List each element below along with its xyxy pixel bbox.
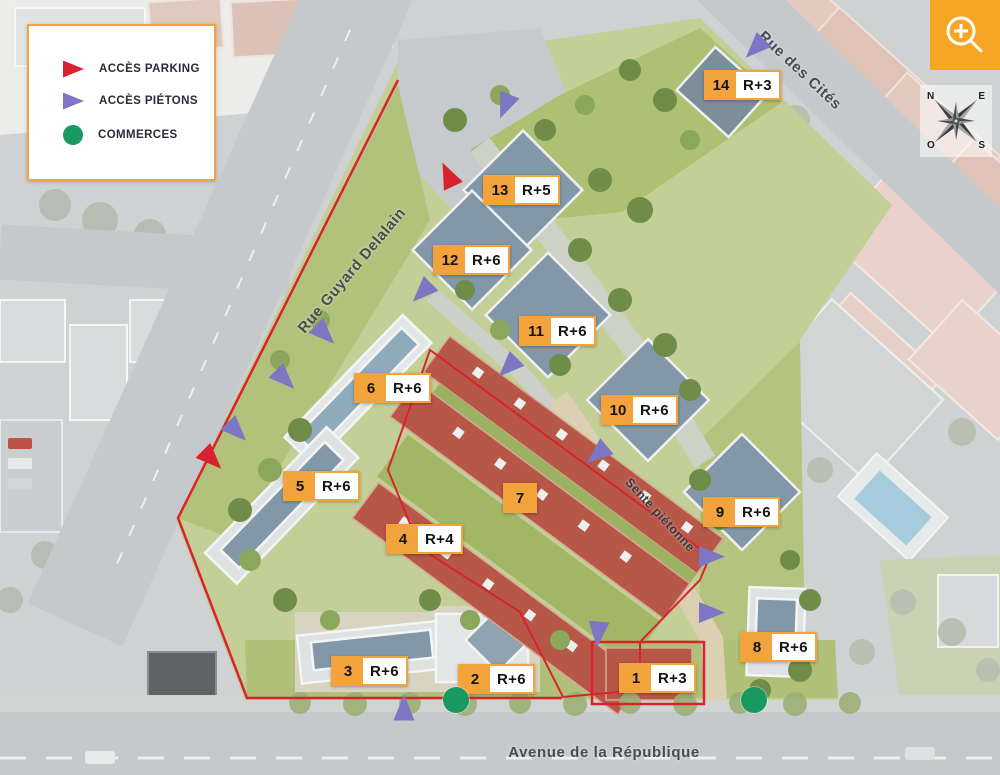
building-number: 14	[706, 72, 736, 98]
building-label-13[interactable]: 13 R+5	[483, 175, 560, 205]
building-number: 9	[705, 499, 735, 525]
building-height: R+6	[386, 375, 429, 401]
compass-e: E	[978, 91, 985, 102]
building-height: R+6	[772, 634, 815, 660]
building-number: 4	[388, 526, 418, 552]
building-number: 12	[435, 247, 465, 273]
site-plan: Rue Guyard Delalain Rue des Cités Avenue…	[0, 0, 1000, 775]
building-label-10[interactable]: 10 R+6	[601, 395, 678, 425]
building-number: 11	[521, 318, 551, 344]
building-label-9[interactable]: 9 R+6	[703, 497, 780, 527]
building-height: R+4	[418, 526, 461, 552]
building-label-3[interactable]: 3 R+6	[331, 656, 408, 686]
building-label-8[interactable]: 8 R+6	[740, 632, 817, 662]
building-number: 10	[603, 397, 633, 423]
legend: ACCÈS PARKING ACCÈS PIÉTONS COMMERCES	[27, 24, 216, 181]
building-label-14[interactable]: 14 R+3	[704, 70, 781, 100]
compass-rose: N E O S	[920, 85, 992, 157]
building-height: R+5	[515, 177, 558, 203]
green-circle-icon	[63, 125, 83, 145]
legend-item-parking: ACCÈS PARKING	[63, 61, 214, 78]
zoom-in-button[interactable]	[930, 0, 1000, 70]
building-label-7[interactable]: 7	[503, 483, 537, 513]
building-label-12[interactable]: 12 R+6	[433, 245, 510, 275]
building-number: 1	[621, 665, 651, 691]
commerce-dot	[741, 687, 767, 713]
building-label-6[interactable]: 6 R+6	[354, 373, 431, 403]
building-number: 6	[356, 375, 386, 401]
compass-o: O	[927, 140, 935, 151]
building-height: R+6	[551, 318, 594, 344]
compass-n: N	[927, 91, 934, 102]
building-height: R+6	[363, 658, 406, 684]
building-height: R+3	[651, 665, 694, 691]
red-arrow-icon	[63, 61, 84, 78]
legend-item-pietons: ACCÈS PIÉTONS	[63, 93, 214, 110]
building-height: R+3	[736, 72, 779, 98]
zoom-in-icon	[943, 13, 987, 57]
building-label-11[interactable]: 11 R+6	[519, 316, 596, 346]
building-height: R+6	[735, 499, 778, 525]
building-label-1[interactable]: 1 R+3	[619, 663, 696, 693]
legend-item-commerces: COMMERCES	[63, 125, 214, 145]
street-avenue-de-la-republique: Avenue de la République	[454, 744, 754, 761]
building-label-5[interactable]: 5 R+6	[283, 471, 360, 501]
legend-label: ACCÈS PIÉTONS	[99, 95, 198, 107]
building-height: R+6	[490, 666, 533, 692]
building-number: 7	[505, 485, 535, 511]
legend-label: ACCÈS PARKING	[99, 63, 200, 75]
building-label-4[interactable]: 4 R+4	[386, 524, 463, 554]
building-number: 3	[333, 658, 363, 684]
building-label-2[interactable]: 2 R+6	[458, 664, 535, 694]
building-height: R+6	[633, 397, 676, 423]
building-height: R+6	[465, 247, 508, 273]
legend-label: COMMERCES	[98, 129, 178, 141]
building-number: 8	[742, 634, 772, 660]
commerce-dot	[443, 687, 469, 713]
building-height: R+6	[315, 473, 358, 499]
building-number: 13	[485, 177, 515, 203]
building-number: 5	[285, 473, 315, 499]
building-number: 2	[460, 666, 490, 692]
compass-s: S	[978, 140, 985, 151]
purple-arrow-icon	[63, 93, 84, 110]
